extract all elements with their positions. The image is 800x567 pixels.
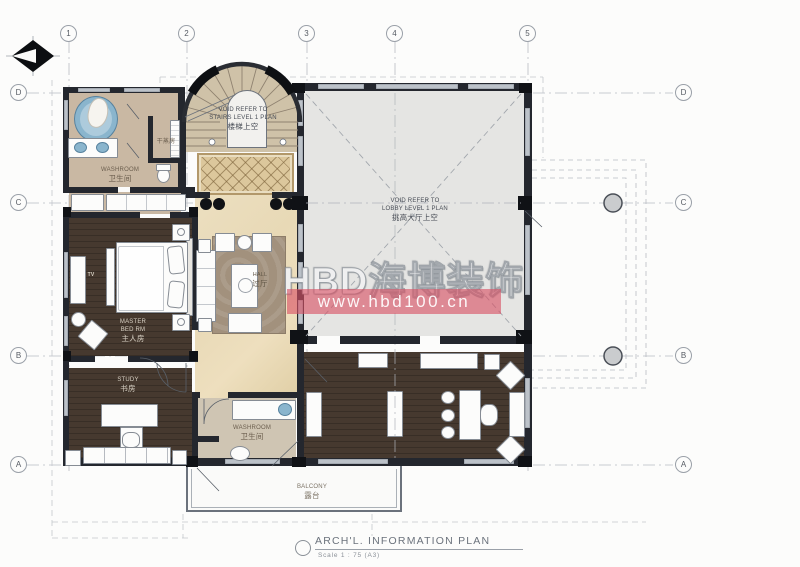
grid-bubble-3: 3 [298, 25, 315, 42]
grid-bubble-1: 1 [60, 25, 77, 42]
north-arrow [6, 36, 60, 76]
newel-post [209, 139, 215, 145]
stair-wall-black-arc [192, 69, 218, 93]
bedroom-label: MASTER BED RM 主人房 [108, 318, 158, 344]
tv-label: TV [84, 272, 98, 279]
balcony-label: BALCONY 露台 [284, 483, 340, 501]
grid-bubble-d-left: D [10, 84, 27, 101]
washroom-bottom-label: WASHROOM 卫生间 [226, 424, 278, 442]
floor-plan: 1 2 3 4 5 D C B A D C B A VOID REFER TO … [0, 0, 800, 567]
titleblock-circle [295, 540, 311, 556]
lobby-void-label: VOID REFER TO LOBBY LEVEL 1 PLAN 挑高大厅上空 [370, 197, 460, 223]
grid-bubble-b-left: B [10, 347, 27, 364]
steam-room-label: 干蒸房 [150, 138, 182, 146]
stair-wall-black-arc [267, 69, 293, 93]
washroom-top-label: WASHROOM 卫生间 [94, 166, 146, 184]
grid-bubble-b-right: B [675, 347, 692, 364]
grid-bubble-2: 2 [178, 25, 195, 42]
grid-bubble-4: 4 [386, 25, 403, 42]
grid-bubble-d-right: D [675, 84, 692, 101]
drawing-scale: Scale 1 : 75 (A3) [318, 552, 380, 559]
grid-bubble-a-right: A [675, 456, 692, 473]
grid-bubble-c-right: C [675, 194, 692, 211]
grid-bubble-c-left: C [10, 194, 27, 211]
drawing-title: ARCH'L. INFORMATION PLAN [315, 535, 490, 547]
hall-label: HALL 过厅 [240, 272, 280, 290]
study-label: STUDY 书房 [103, 376, 153, 394]
stairs-void-label: VOID REFER TO STAIRS LEVEL 1 PLAN 楼梯上空 [203, 106, 283, 132]
grid-bubble-5: 5 [519, 25, 536, 42]
title-underline [315, 549, 523, 550]
newel-post [280, 139, 286, 145]
grid-bubble-a-left: A [10, 456, 27, 473]
watermark-url-banner: www.hbd100.cn [287, 289, 501, 314]
